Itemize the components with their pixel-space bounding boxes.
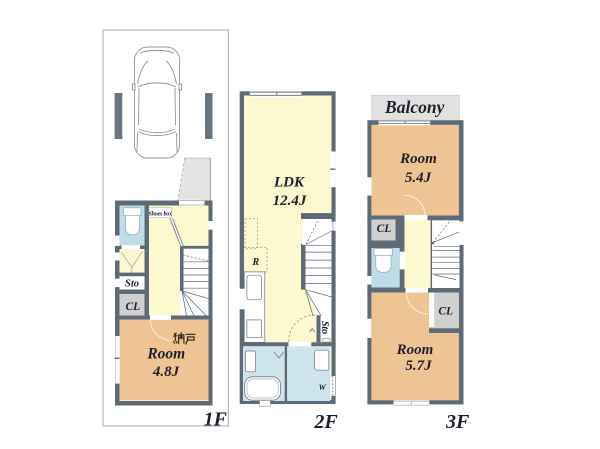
svg-text:1F: 1F: [204, 409, 228, 431]
svg-text:2F: 2F: [313, 411, 338, 433]
svg-text:Shoes box: Shoes box: [149, 211, 173, 217]
svg-text:Balcony: Balcony: [384, 97, 445, 117]
svg-text:12.4J: 12.4J: [273, 193, 307, 209]
svg-text:4.8J: 4.8J: [152, 364, 180, 380]
svg-text:Room: Room: [396, 342, 434, 358]
svg-text:Sto: Sto: [125, 279, 139, 290]
svg-text:CL: CL: [438, 306, 453, 318]
svg-text:CL: CL: [377, 223, 392, 235]
svg-text:Room: Room: [146, 345, 185, 362]
svg-text:R: R: [251, 257, 259, 268]
svg-text:CL: CL: [125, 301, 140, 313]
svg-text:LDK: LDK: [273, 174, 305, 190]
svg-text:3F: 3F: [445, 411, 470, 433]
svg-text:5.4J: 5.4J: [405, 170, 432, 186]
svg-text:W: W: [319, 383, 327, 392]
svg-text:5.7J: 5.7J: [405, 358, 432, 374]
svg-text:Sto: Sto: [319, 321, 330, 334]
svg-text:Room: Room: [399, 151, 437, 167]
